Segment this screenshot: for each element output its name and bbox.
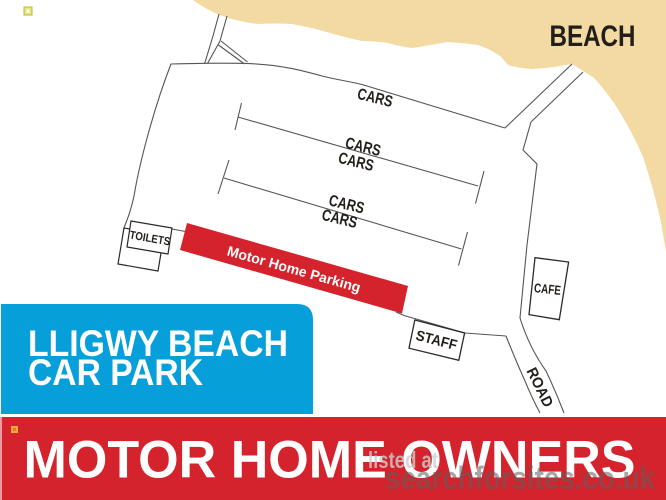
svg-text:CARS: CARS	[355, 86, 394, 111]
svg-text:CAR PARK: CAR PARK	[28, 352, 203, 393]
svg-text:searchforsites.co.uk: searchforsites.co.uk	[385, 460, 655, 496]
svg-text:BEACH: BEACH	[550, 20, 636, 53]
svg-text:CAFE: CAFE	[533, 280, 562, 298]
